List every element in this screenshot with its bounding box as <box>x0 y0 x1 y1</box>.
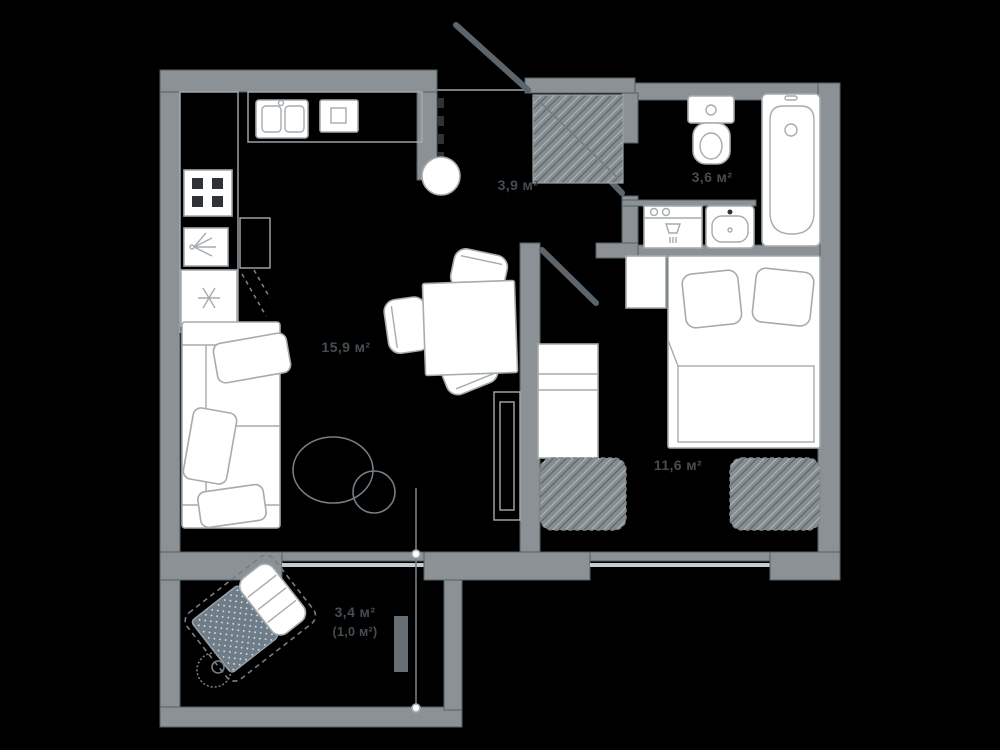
hall-stool <box>422 157 460 195</box>
bathroom-area-label: 3,6 м² <box>692 169 733 185</box>
wardrobe <box>538 344 598 458</box>
riser-node <box>412 550 420 558</box>
living-room-area-label: 15,9 м² <box>322 339 371 355</box>
bathroom: 3,6 м² <box>644 94 820 248</box>
toilet <box>688 96 734 164</box>
wall-bottom-middle <box>424 552 590 580</box>
wall-balcony-left <box>160 580 180 727</box>
window-bedroom-glass <box>590 563 770 567</box>
wall-top-hall <box>525 78 635 93</box>
rug <box>293 437 373 503</box>
balcony-plant-inner <box>212 661 224 673</box>
floor-plan-page: 15,9 м² 3,9 м² <box>0 0 1000 750</box>
wall-balcony-right <box>444 580 462 710</box>
hallway: 3,9 м² <box>422 95 623 195</box>
burner <box>212 178 223 189</box>
cabinet-dash-detail <box>242 274 266 316</box>
riser-node <box>412 704 420 712</box>
bathroom-shelf <box>622 200 756 206</box>
bed-pillow <box>751 267 814 327</box>
bed-pillow <box>681 269 742 329</box>
wall-bathroom-left-top <box>622 93 638 143</box>
bathroom-sink <box>706 206 754 248</box>
burner <box>192 178 203 189</box>
washing-machine <box>644 206 702 248</box>
kitchen-cabinet <box>240 218 270 268</box>
floor-plan-canvas: 15,9 м² 3,9 м² <box>0 0 1000 750</box>
balcony-area-total-label: 3,4 м² <box>335 604 376 620</box>
wall-right <box>818 83 840 580</box>
hallway-area-label: 3,9 м² <box>498 177 539 193</box>
balcony-planter <box>394 616 408 672</box>
wall-left <box>160 70 180 580</box>
window-balcony-frame <box>282 552 424 561</box>
balcony-plant <box>197 653 231 687</box>
kitchen-zone <box>180 92 422 332</box>
wall-bottom-right <box>770 552 840 580</box>
radiator-notch <box>437 134 444 144</box>
radiator-notch <box>437 116 444 126</box>
bedroom: 11,6 м² <box>538 256 820 530</box>
wall-living-bedroom <box>520 243 540 552</box>
tv-stand <box>494 392 520 520</box>
nightstand <box>626 256 666 308</box>
bedroom-door-leaf <box>542 250 596 303</box>
bedroom-pouf-left <box>540 458 626 530</box>
bedroom-area-label: 11,6 м² <box>654 457 702 473</box>
balcony-area-reduced-label: (1,0 м²) <box>333 625 378 639</box>
burner <box>192 196 203 207</box>
dining-table <box>422 280 517 375</box>
window-bedroom-frame <box>590 552 770 561</box>
tv-stand-inner <box>500 402 514 510</box>
rug-small <box>353 471 395 513</box>
bathtub <box>762 94 820 246</box>
bedroom-pouf-right <box>730 458 820 530</box>
kitchen-appliance <box>320 100 358 132</box>
radiator-notch <box>437 98 444 108</box>
window-balcony-glass <box>282 563 424 567</box>
entrance-door-leaf <box>456 25 528 90</box>
burner <box>212 196 223 207</box>
cabinet-dash-detail <box>254 270 270 298</box>
wall-top-kitchen <box>160 70 437 92</box>
stove <box>184 170 232 216</box>
